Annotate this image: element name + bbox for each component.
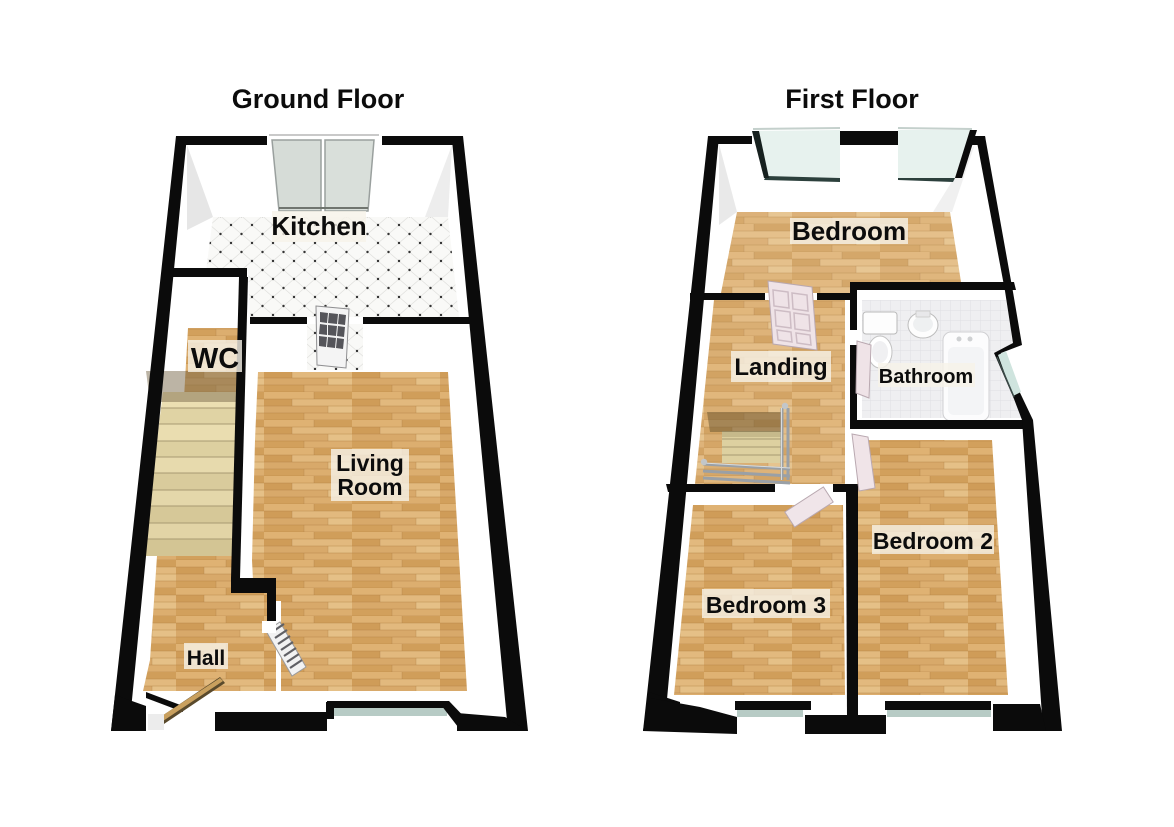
svg-text:Ground Floor: Ground Floor bbox=[232, 84, 405, 114]
svg-text:Bedroom 3: Bedroom 3 bbox=[706, 592, 826, 618]
svg-text:Bedroom: Bedroom bbox=[792, 216, 906, 246]
svg-text:First Floor: First Floor bbox=[785, 84, 919, 114]
svg-text:WC: WC bbox=[191, 343, 239, 375]
svg-text:Landing: Landing bbox=[734, 354, 827, 381]
svg-text:Bedroom 2: Bedroom 2 bbox=[873, 528, 993, 554]
svg-text:Living: Living bbox=[336, 450, 404, 476]
svg-text:Bathroom: Bathroom bbox=[879, 366, 973, 388]
svg-text:Kitchen: Kitchen bbox=[271, 211, 366, 241]
svg-text:Hall: Hall bbox=[187, 647, 226, 670]
svg-text:Room: Room bbox=[337, 474, 402, 500]
